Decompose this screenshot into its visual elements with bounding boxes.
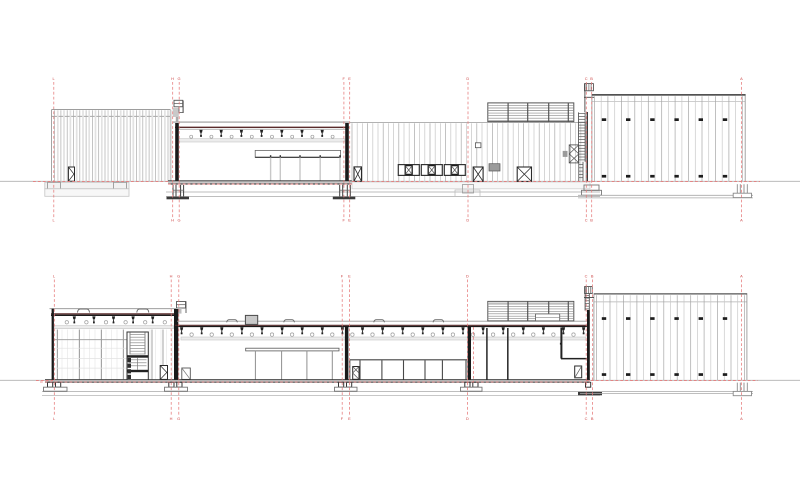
svg-text:G: G bbox=[177, 416, 180, 421]
svg-text:E: E bbox=[348, 273, 351, 278]
svg-text:D: D bbox=[466, 218, 469, 223]
svg-text:C: C bbox=[585, 218, 588, 223]
svg-text:G: G bbox=[177, 273, 180, 278]
svg-text:B: B bbox=[591, 273, 594, 278]
svg-text:B: B bbox=[591, 416, 594, 421]
svg-text:F: F bbox=[341, 273, 344, 278]
svg-text:G: G bbox=[177, 218, 180, 223]
svg-text:A: A bbox=[740, 273, 743, 278]
svg-text:D: D bbox=[466, 416, 469, 421]
svg-text:D: D bbox=[466, 76, 469, 81]
svg-text:L: L bbox=[53, 273, 56, 278]
svg-text:D: D bbox=[466, 273, 469, 278]
svg-text:H: H bbox=[171, 218, 174, 223]
svg-text:F: F bbox=[341, 416, 344, 421]
svg-text:A: A bbox=[740, 218, 743, 223]
svg-text:B: B bbox=[590, 218, 593, 223]
svg-text:E: E bbox=[348, 218, 351, 223]
svg-text:A: A bbox=[740, 416, 743, 421]
svg-text:E: E bbox=[348, 76, 351, 81]
svg-text:G: G bbox=[177, 76, 180, 81]
svg-text:A: A bbox=[740, 76, 743, 81]
svg-text:E: E bbox=[348, 416, 351, 421]
svg-text:C: C bbox=[585, 273, 588, 278]
svg-text:F: F bbox=[343, 76, 346, 81]
svg-text:B: B bbox=[590, 76, 593, 81]
svg-text:L: L bbox=[53, 416, 56, 421]
svg-text:L: L bbox=[53, 218, 56, 223]
svg-text:F: F bbox=[343, 218, 346, 223]
svg-text:H: H bbox=[170, 273, 173, 278]
svg-text:C: C bbox=[585, 76, 588, 81]
svg-text:C: C bbox=[585, 416, 588, 421]
svg-text:H: H bbox=[170, 416, 173, 421]
svg-text:L: L bbox=[53, 76, 56, 81]
svg-text:H: H bbox=[171, 76, 174, 81]
